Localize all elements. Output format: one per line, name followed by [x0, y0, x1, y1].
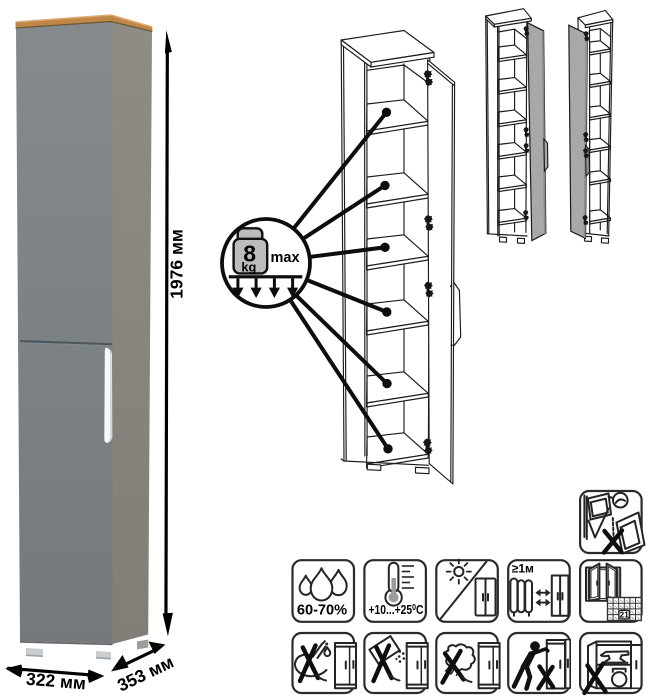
svg-text:kg: kg: [241, 260, 256, 275]
svg-text:max: max: [271, 250, 300, 266]
svg-text:60-70%: 60-70%: [297, 602, 347, 618]
svg-text:21: 21: [620, 610, 630, 619]
svg-text:1976 мм: 1976 мм: [167, 229, 187, 299]
svg-text:≥1м: ≥1м: [512, 561, 534, 575]
svg-text:+10...+250C: +10...+250C: [369, 602, 424, 617]
